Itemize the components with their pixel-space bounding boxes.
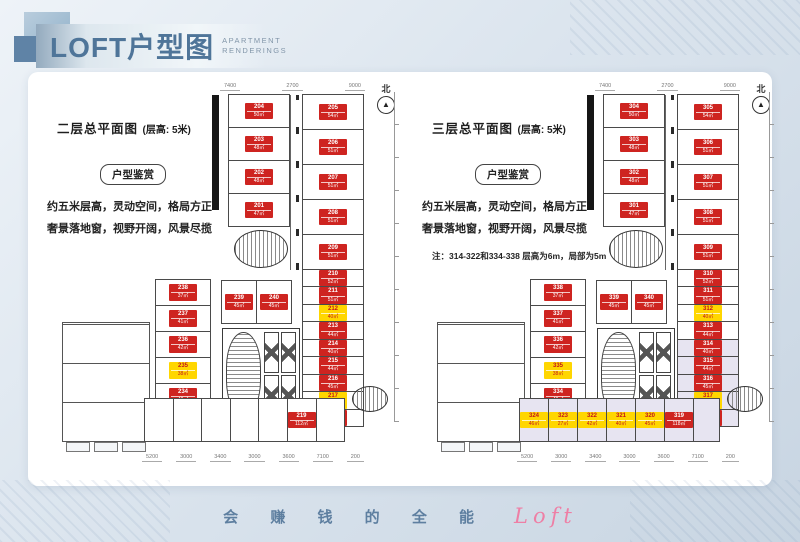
unit-label: 32327㎡ xyxy=(549,412,577,428)
unit-area: 42㎡ xyxy=(580,421,604,427)
dimension-label: 3000 xyxy=(551,454,571,462)
compass-icon: ▲ xyxy=(377,96,395,114)
room-cell: 30951㎡ xyxy=(677,234,739,270)
footer-slogan: 会 赚 钱 的 全 能 Loft xyxy=(0,490,800,542)
unit-area: 51㎡ xyxy=(696,183,720,189)
room-cell: 33642㎡ xyxy=(530,331,586,358)
room-cell: 20147㎡ xyxy=(228,193,290,227)
room-cell: 21151㎡ xyxy=(302,286,364,304)
unit-label: 30554㎡ xyxy=(694,104,722,120)
unit-label: 33538㎡ xyxy=(544,362,572,378)
unit-number: 312 xyxy=(696,306,720,314)
dimension-label: 3600 xyxy=(654,454,674,462)
unit-label: 30348㎡ xyxy=(620,136,648,152)
unit-area: 54㎡ xyxy=(696,113,720,119)
unit-label: 21344㎡ xyxy=(319,322,347,338)
unit-area: 27㎡ xyxy=(551,421,575,427)
room-cell: 33741㎡ xyxy=(530,305,586,332)
unit-number: 309 xyxy=(696,245,720,253)
unit-area: 38㎡ xyxy=(171,371,195,377)
unit-number: 209 xyxy=(321,245,345,253)
wall-bar xyxy=(212,95,219,210)
unit-label: 33837㎡ xyxy=(544,284,572,300)
staircase-icon xyxy=(727,386,763,412)
unit-number: 201 xyxy=(247,203,271,211)
dimension-row-top: 740027009000 xyxy=(595,83,740,91)
elevator-icon xyxy=(264,332,279,373)
unit-area: 45㎡ xyxy=(638,421,662,427)
unit-area: 44㎡ xyxy=(321,366,345,372)
rooms-bottom-row: 32446㎡32327㎡32242㎡32140㎡32045㎡319118㎡ xyxy=(520,398,720,442)
compass-icon: ▲ xyxy=(752,96,770,114)
wall-bar xyxy=(587,95,594,210)
unit-number: 324 xyxy=(522,413,546,421)
unit-label: 31344㎡ xyxy=(694,322,722,338)
room-cell: 20851㎡ xyxy=(302,199,364,235)
annex-wing xyxy=(437,322,525,442)
unit-label: 219112㎡ xyxy=(288,412,316,428)
unit-area: 112㎡ xyxy=(290,421,314,427)
dimension-label: 3000 xyxy=(619,454,639,462)
unit-area: 51㎡ xyxy=(696,253,720,259)
room-cell: 32446㎡ xyxy=(519,398,549,442)
unit-label: 21645㎡ xyxy=(319,375,347,391)
room-cell: 32327㎡ xyxy=(548,398,578,442)
north-indicator: 北 ▲ xyxy=(376,82,396,114)
dimension-label: 9000 xyxy=(720,83,740,91)
unit-label: 21544㎡ xyxy=(319,357,347,373)
unit-area: 47㎡ xyxy=(622,211,646,217)
rooms-middle-pair: 33945㎡34045㎡ xyxy=(597,280,667,324)
balconies xyxy=(66,442,146,452)
room-cell: 30651㎡ xyxy=(677,129,739,165)
unit-label: 30851㎡ xyxy=(694,209,722,225)
unit-area: 40㎡ xyxy=(321,314,345,320)
room-cell: 32242㎡ xyxy=(577,398,607,442)
room-cell: 20554㎡ xyxy=(302,94,364,130)
room-cell xyxy=(693,398,720,442)
unit-label: 33642㎡ xyxy=(544,336,572,352)
room-cell: 31151㎡ xyxy=(677,286,739,304)
unit-label: 21440㎡ xyxy=(319,340,347,356)
room-cell: 23837㎡ xyxy=(155,279,211,306)
room-cell: 21344㎡ xyxy=(302,321,364,339)
unit-area: 42㎡ xyxy=(171,345,195,351)
unit-number: 203 xyxy=(247,137,271,145)
page-subtitle-line1: APARTMENT xyxy=(222,36,287,46)
north-label: 北 xyxy=(751,82,771,95)
unit-label: 31544㎡ xyxy=(694,357,722,373)
unit-area: 40㎡ xyxy=(696,314,720,320)
floor-plan-third-floor: 三层总平面图 (层高: 5米) 户型鉴赏 约五米层高，灵动空间，格局方正 奢景落… xyxy=(415,78,780,483)
rooms-bottom-row: 219112㎡ xyxy=(145,398,345,442)
dimension-label: 9000 xyxy=(345,83,365,91)
rooms-column-a: 30450㎡30348㎡30248㎡30147㎡ xyxy=(603,95,665,227)
dimension-label: 7100 xyxy=(313,454,333,462)
unit-label: 30751㎡ xyxy=(694,174,722,190)
unit-area: 37㎡ xyxy=(171,293,195,299)
unit-label: 24045㎡ xyxy=(260,294,288,310)
unit-label: 32045㎡ xyxy=(636,412,664,428)
unit-number: 310 xyxy=(696,271,720,279)
unit-number: 305 xyxy=(696,105,720,113)
unit-label: 23741㎡ xyxy=(169,310,197,326)
plan-canvas: 北 ▲ 740027009000 20450㎡20348㎡20248㎡20147… xyxy=(60,80,400,478)
room-cell: 319118㎡ xyxy=(664,398,694,442)
unit-label: 32242㎡ xyxy=(578,412,606,428)
unit-area: 40㎡ xyxy=(609,421,633,427)
rooms-column-b: 20554㎡20651㎡20751㎡20851㎡20951㎡ xyxy=(302,95,364,270)
unit-number: 307 xyxy=(696,175,720,183)
room-cell xyxy=(316,398,346,442)
unit-label: 30651㎡ xyxy=(694,139,722,155)
unit-number: 339 xyxy=(602,295,626,303)
room-cell: 31344㎡ xyxy=(677,321,739,339)
unit-area: 40㎡ xyxy=(696,349,720,355)
unit-label: 31645㎡ xyxy=(694,375,722,391)
rooms-column-left: 33837㎡33741㎡33642㎡33538㎡33442㎡ xyxy=(530,280,586,410)
room-cell: 31052㎡ xyxy=(677,269,739,287)
unit-label: 34045㎡ xyxy=(635,294,663,310)
unit-area: 40㎡ xyxy=(321,349,345,355)
dimension-label: 7400 xyxy=(220,83,240,91)
unit-label: 20851㎡ xyxy=(319,209,347,225)
unit-label: 21151㎡ xyxy=(319,287,347,303)
rooms-middle-pair: 23945㎡24045㎡ xyxy=(222,280,292,324)
floor-plan-second-floor: 二层总平面图 (层高: 5米) 户型鉴赏 约五米层高，灵动空间，格局方正 奢景落… xyxy=(40,78,405,483)
room-cell xyxy=(173,398,203,442)
unit-number: 205 xyxy=(321,105,345,113)
unit-area: 54㎡ xyxy=(321,113,345,119)
dimension-label: 200 xyxy=(347,454,364,462)
unit-area: 41㎡ xyxy=(171,319,195,325)
unit-label: 20147㎡ xyxy=(245,202,273,218)
unit-area: 45㎡ xyxy=(227,303,251,309)
unit-label: 31151㎡ xyxy=(694,287,722,303)
unit-label: 21240㎡ xyxy=(319,305,347,321)
room-cell: 24045㎡ xyxy=(256,280,292,324)
unit-number: 321 xyxy=(609,413,633,421)
dimension-label: 5200 xyxy=(142,454,162,462)
room-cell: 31440㎡ xyxy=(677,339,739,357)
room-cell: 21052㎡ xyxy=(302,269,364,287)
page-title: LOFT户型图 xyxy=(50,26,214,66)
unit-label: 319118㎡ xyxy=(665,412,693,428)
unit-number: 211 xyxy=(321,288,345,296)
corner-stripes-top-right xyxy=(570,0,800,55)
unit-area: 45㎡ xyxy=(696,384,720,390)
dimension-label: 200 xyxy=(722,454,739,462)
page-subtitle: APARTMENT RENDERINGS xyxy=(222,36,287,56)
unit-area: 51㎡ xyxy=(321,183,345,189)
unit-number: 314 xyxy=(696,341,720,349)
room-cell: 33538㎡ xyxy=(530,357,586,384)
unit-number: 308 xyxy=(696,210,720,218)
rooms-column-a: 20450㎡20348㎡20248㎡20147㎡ xyxy=(228,95,290,227)
unit-area: 48㎡ xyxy=(622,178,646,184)
room-cell: 34045㎡ xyxy=(631,280,667,324)
rooms-column-b: 30554㎡30651㎡30751㎡30851㎡30951㎡ xyxy=(677,95,739,270)
unit-label: 23945㎡ xyxy=(225,294,253,310)
unit-number: 304 xyxy=(622,104,646,112)
room-cell: 30450㎡ xyxy=(603,94,665,128)
room-cell: 20450㎡ xyxy=(228,94,290,128)
unit-number: 323 xyxy=(551,413,575,421)
unit-label: 23837㎡ xyxy=(169,284,197,300)
room-cell: 32140㎡ xyxy=(606,398,636,442)
dimension-label: 3600 xyxy=(279,454,299,462)
elevator-icon xyxy=(656,332,671,373)
page-subtitle-line2: RENDERINGS xyxy=(222,46,287,56)
dimension-label: 5200 xyxy=(517,454,537,462)
unit-label: 20651㎡ xyxy=(319,139,347,155)
elevator-icon xyxy=(281,332,296,373)
unit-number: 311 xyxy=(696,288,720,296)
room-cell: 23945㎡ xyxy=(221,280,257,324)
unit-area: 51㎡ xyxy=(321,218,345,224)
room-cell: 23642㎡ xyxy=(155,331,211,358)
unit-label: 20554㎡ xyxy=(319,104,347,120)
dimension-label: 3400 xyxy=(585,454,605,462)
dimension-label: 2700 xyxy=(657,83,677,91)
unit-number: 306 xyxy=(696,140,720,148)
room-cell: 31544㎡ xyxy=(677,356,739,374)
unit-label: 20951㎡ xyxy=(319,244,347,260)
unit-area: 45㎡ xyxy=(321,384,345,390)
unit-area: 118㎡ xyxy=(667,421,691,427)
unit-label: 23642㎡ xyxy=(169,336,197,352)
unit-area: 41㎡ xyxy=(546,319,570,325)
unit-area: 44㎡ xyxy=(696,332,720,338)
annex-wing xyxy=(62,322,150,442)
room-cell: 21544㎡ xyxy=(302,356,364,374)
unit-number: 316 xyxy=(696,376,720,384)
dimension-row-top: 740027009000 xyxy=(220,83,365,91)
elevator-icon xyxy=(639,332,654,373)
unit-number: 322 xyxy=(580,413,604,421)
unit-number: 313 xyxy=(696,323,720,331)
unit-label: 23538㎡ xyxy=(169,362,197,378)
unit-number: 206 xyxy=(321,140,345,148)
unit-label: 31440㎡ xyxy=(694,340,722,356)
unit-area: 42㎡ xyxy=(546,345,570,351)
unit-number: 210 xyxy=(321,271,345,279)
unit-area: 46㎡ xyxy=(522,421,546,427)
room-cell: 30851㎡ xyxy=(677,199,739,235)
unit-number: 239 xyxy=(227,295,251,303)
room-cell: 31645㎡ xyxy=(677,374,739,392)
unit-number: 216 xyxy=(321,376,345,384)
unit-label: 20751㎡ xyxy=(319,174,347,190)
balconies xyxy=(441,442,521,452)
room-cell: 20348㎡ xyxy=(228,127,290,161)
dimension-label: 3400 xyxy=(210,454,230,462)
room-cell: 20248㎡ xyxy=(228,160,290,194)
room-cell: 30147㎡ xyxy=(603,193,665,227)
unit-label: 20348㎡ xyxy=(245,136,273,152)
slogan-loft: Loft xyxy=(514,504,577,528)
room-cell: 219112㎡ xyxy=(287,398,317,442)
unit-label: 32140㎡ xyxy=(607,412,635,428)
unit-label: 20248㎡ xyxy=(245,169,273,185)
room-cell xyxy=(201,398,231,442)
unit-area: 48㎡ xyxy=(622,145,646,151)
unit-area: 48㎡ xyxy=(247,145,271,151)
staircase-icon xyxy=(352,386,388,412)
unit-number: 213 xyxy=(321,323,345,331)
unit-area: 45㎡ xyxy=(637,303,661,309)
room-cell: 23741㎡ xyxy=(155,305,211,332)
room-cell: 23538㎡ xyxy=(155,357,211,384)
room-cell xyxy=(144,398,174,442)
unit-number: 207 xyxy=(321,175,345,183)
unit-area: 47㎡ xyxy=(247,211,271,217)
dimension-label: 3000 xyxy=(244,454,264,462)
room-cell: 30348㎡ xyxy=(603,127,665,161)
dimension-label: 3000 xyxy=(176,454,196,462)
unit-area: 50㎡ xyxy=(247,112,271,118)
unit-label: 30450㎡ xyxy=(620,103,648,119)
dimension-label: 7100 xyxy=(688,454,708,462)
dimension-row-bottom: 520030003400300036007100200 xyxy=(517,454,739,462)
room-cell: 33837㎡ xyxy=(530,279,586,306)
room-cell: 21645㎡ xyxy=(302,374,364,392)
unit-label: 31240㎡ xyxy=(694,305,722,321)
room-cell: 21240㎡ xyxy=(302,304,364,322)
unit-area: 44㎡ xyxy=(321,332,345,338)
unit-area: 51㎡ xyxy=(321,297,345,303)
unit-number: 208 xyxy=(321,210,345,218)
unit-area: 45㎡ xyxy=(602,303,626,309)
unit-number: 202 xyxy=(247,170,271,178)
dimension-label: 2700 xyxy=(282,83,302,91)
room-cell xyxy=(258,398,288,442)
dimension-ruler xyxy=(769,92,774,422)
dimension-label: 7400 xyxy=(595,83,615,91)
unit-area: 51㎡ xyxy=(321,253,345,259)
plan-canvas: 北 ▲ 740027009000 30450㎡30348㎡30248㎡30147… xyxy=(435,80,775,478)
unit-number: 212 xyxy=(321,306,345,314)
unit-label: 33741㎡ xyxy=(544,310,572,326)
room-cell xyxy=(230,398,260,442)
unit-area: 51㎡ xyxy=(321,148,345,154)
unit-area: 37㎡ xyxy=(546,293,570,299)
unit-label: 30147㎡ xyxy=(620,202,648,218)
room-cell: 33945㎡ xyxy=(596,280,632,324)
unit-area: 51㎡ xyxy=(696,297,720,303)
unit-number: 320 xyxy=(638,413,662,421)
room-cell: 31240㎡ xyxy=(677,304,739,322)
staircase-icon xyxy=(609,230,663,268)
unit-label: 20450㎡ xyxy=(245,103,273,119)
slogan-chinese: 会 赚 钱 的 全 能 xyxy=(223,506,488,527)
unit-area: 45㎡ xyxy=(262,303,286,309)
unit-number: 214 xyxy=(321,341,345,349)
unit-area: 48㎡ xyxy=(247,178,271,184)
unit-area: 38㎡ xyxy=(546,371,570,377)
room-cell: 30248㎡ xyxy=(603,160,665,194)
unit-label: 21052㎡ xyxy=(319,270,347,286)
room-cell: 21440㎡ xyxy=(302,339,364,357)
page-title-banner: LOFT户型图 APARTMENT RENDERINGS xyxy=(36,24,266,68)
unit-label: 30248㎡ xyxy=(620,169,648,185)
unit-area: 51㎡ xyxy=(696,218,720,224)
dimension-row-bottom: 520030003400300036007100200 xyxy=(142,454,364,462)
rooms-column-left: 23837㎡23741㎡23642㎡23538㎡23442㎡ xyxy=(155,280,211,410)
unit-number: 301 xyxy=(622,203,646,211)
dimension-ruler xyxy=(394,92,399,422)
room-cell: 30554㎡ xyxy=(677,94,739,130)
unit-label: 31052㎡ xyxy=(694,270,722,286)
room-cell: 32045㎡ xyxy=(635,398,665,442)
room-cell: 30751㎡ xyxy=(677,164,739,200)
north-label: 北 xyxy=(376,82,396,95)
unit-number: 303 xyxy=(622,137,646,145)
unit-number: 302 xyxy=(622,170,646,178)
unit-label: 30951㎡ xyxy=(694,244,722,260)
unit-number: 204 xyxy=(247,104,271,112)
room-cell: 20751㎡ xyxy=(302,164,364,200)
unit-number: 219 xyxy=(290,413,314,421)
unit-area: 44㎡ xyxy=(696,366,720,372)
unit-label: 32446㎡ xyxy=(520,412,548,428)
north-indicator: 北 ▲ xyxy=(751,82,771,114)
unit-area: 52㎡ xyxy=(321,279,345,285)
unit-label: 33945㎡ xyxy=(600,294,628,310)
room-cell: 20951㎡ xyxy=(302,234,364,270)
unit-area: 51㎡ xyxy=(696,148,720,154)
unit-number: 319 xyxy=(667,413,691,421)
unit-number: 340 xyxy=(637,295,661,303)
room-cell: 20651㎡ xyxy=(302,129,364,165)
unit-area: 50㎡ xyxy=(622,112,646,118)
unit-number: 240 xyxy=(262,295,286,303)
staircase-icon xyxy=(234,230,288,268)
unit-area: 52㎡ xyxy=(696,279,720,285)
